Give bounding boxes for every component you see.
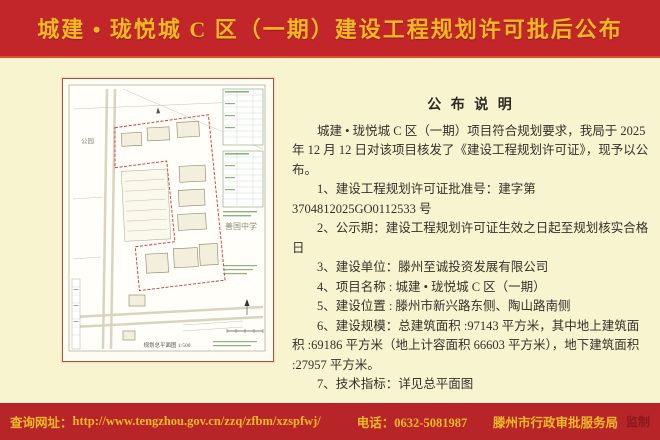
notice-section: 公 布 说 明 城建 • 珑悦城 C 区（一期）项目符合规划要求，我局于 202… <box>292 96 650 395</box>
notice-item-3: 3、建设单位：滕州至诚投资发展有限公司 <box>292 258 650 278</box>
query-url-label: 查询网址： <box>10 412 73 431</box>
header-banner: 城建 • 珑悦城 C 区（一期）建设工程规划许可批后公布 <box>0 0 660 58</box>
notice-item-6: 6、建设规模：总建筑面积 :97143 平方米，其中地上建筑面积 :69186 … <box>292 317 650 376</box>
agency-name: 滕州市行政审批服务局 <box>493 412 618 431</box>
notice-item-7: 7、技术指标：详见总平面图 <box>292 375 650 395</box>
notice-item-1: 1、建设工程规划许可证批准号：建字第 3704812025GO0112533 号 <box>292 180 650 219</box>
school-label: 善国中学 <box>225 221 257 231</box>
indicator-table-2 <box>223 151 263 207</box>
notice-item-2: 2、公示期：建设工程规划许可证生效之日起至规划核实合格日 <box>292 219 650 258</box>
page-title: 城建 • 珑悦城 C 区（一期）建设工程规划许可批后公布 <box>37 12 623 44</box>
announcement-page: 城建 • 珑悦城 C 区（一期）建设工程规划许可批后公布 <box>0 0 660 440</box>
plan-legend <box>72 279 80 349</box>
query-url-group: 查询网址： http://www.tengzhou.gov.cn/zzq/zfb… <box>10 412 321 431</box>
plan-caption: 规划总平面图 1:500 <box>144 341 191 349</box>
notice-item-5: 5、建设位置 : 滕州市新兴路东侧、陶山路南侧 <box>292 297 650 317</box>
site-plan-svg: 公园 善国中学 规划总平面图 1:500 <box>63 79 271 359</box>
school-field <box>121 169 171 241</box>
indicator-table-1 <box>223 89 263 145</box>
supervision-seal: 监制 <box>626 413 650 430</box>
site-plan-drawing: 公园 善国中学 规划总平面图 1:500 <box>62 78 274 362</box>
phone-number: 电话：0632-5081987 <box>357 412 467 431</box>
notice-title: 公 布 说 明 <box>292 96 650 116</box>
query-url-link[interactable]: http://www.tengzhou.gov.cn/zzq/zfbm/xzsp… <box>73 414 321 429</box>
footer-bar: 查询网址： http://www.tengzhou.gov.cn/zzq/zfb… <box>0 403 660 440</box>
notice-intro: 城建 • 珑悦城 C 区（一期）项目符合规划要求，我局于 2025 年 12 月… <box>292 122 650 181</box>
notice-item-4: 4、项目名称 : 城建 • 珑悦城 C 区（一期） <box>292 278 650 298</box>
park-label: 公园 <box>81 137 94 145</box>
